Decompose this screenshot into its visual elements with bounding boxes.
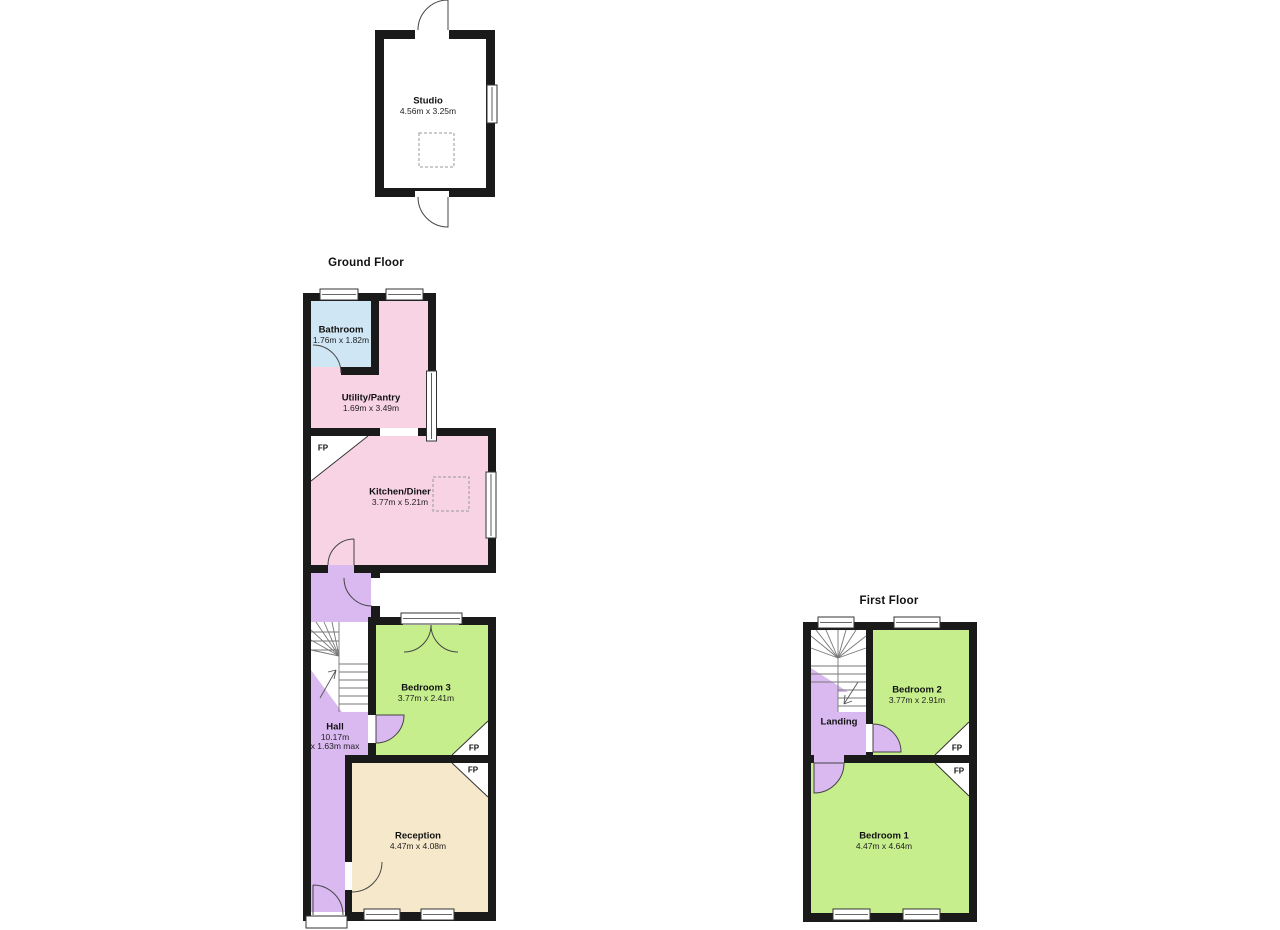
landing-doorway: [814, 755, 844, 763]
landing-name: Landing: [821, 717, 858, 728]
reception-window-right: [421, 909, 454, 920]
bedroom2-window: [894, 617, 940, 628]
landing-window: [818, 617, 854, 628]
studio-name: Studio: [413, 96, 443, 107]
studio-dims: 4.56m x 3.25m: [400, 106, 456, 116]
kitchen-side-window: [486, 472, 496, 538]
bedroom1-fp-label: FP: [954, 767, 964, 776]
studio-top-door-arc: [418, 0, 448, 30]
bathroom-window: [320, 289, 358, 300]
floorplan-page: Ground Floor First Floor Studio 4.56m x …: [0, 0, 1280, 930]
rear-lobby-floor: [311, 565, 371, 622]
first-floor-title: First Floor: [859, 595, 918, 607]
bedroom2-dims: 3.77m x 2.91m: [889, 695, 945, 705]
bedroom3-fp-label: FP: [469, 744, 479, 753]
bedroom2-name: Bedroom 2: [892, 685, 942, 696]
hall-name: Hall: [326, 722, 343, 733]
bedroom3-door-sill: [401, 613, 462, 624]
kitchen-fp-label: FP: [318, 444, 328, 453]
utility-top-window: [386, 289, 423, 300]
bathroom-name: Bathroom: [319, 325, 364, 336]
utility-dims: 1.69m x 3.49m: [343, 403, 399, 413]
kitchen-name: Kitchen/Diner: [369, 487, 431, 498]
first-stairs-lower: [838, 692, 866, 712]
hall-dims-2: x 1.63m max: [311, 741, 360, 751]
front-door-threshold: [306, 916, 347, 928]
studio-window: [487, 85, 497, 123]
bedroom1-window-right: [903, 909, 940, 920]
reception-fp-label: FP: [468, 766, 478, 775]
floorplan-drawing: [0, 0, 1280, 930]
studio-bottom-door-gap: [415, 191, 449, 202]
utility-side-window: [427, 371, 437, 441]
ground-floor-title: Ground Floor: [328, 257, 404, 269]
bathroom-dims: 1.76m x 1.82m: [313, 335, 369, 345]
kitchen-dims: 3.77m x 5.21m: [372, 497, 428, 507]
bedroom3-dims: 3.77m x 2.41m: [398, 693, 454, 703]
bedroom3-name: Bedroom 3: [401, 683, 451, 694]
bedroom2-fp-label: FP: [952, 744, 962, 753]
bedroom1-dims: 4.47m x 4.64m: [856, 841, 912, 851]
reception-name: Reception: [395, 831, 441, 842]
utility-name: Utility/Pantry: [342, 393, 401, 404]
first-floor-plan: [803, 617, 977, 922]
bedroom1-name: Bedroom 1: [859, 831, 909, 842]
studio-top-door-gap: [415, 29, 449, 40]
reception-dims: 4.47m x 4.08m: [390, 841, 446, 851]
reception-window-left: [364, 909, 400, 920]
bedroom1-window-left: [833, 909, 870, 920]
